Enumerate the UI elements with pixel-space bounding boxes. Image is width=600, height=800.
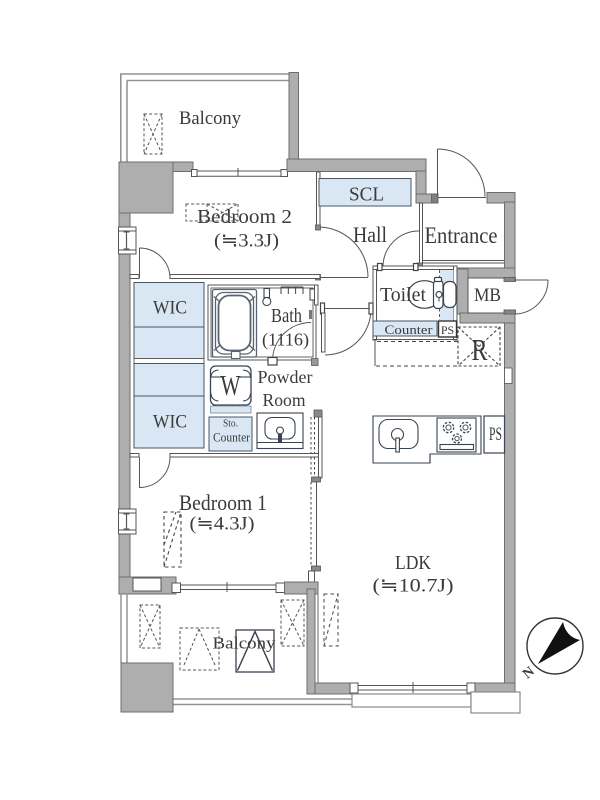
svg-text:(≒3.3J): (≒3.3J) [214, 231, 279, 252]
svg-text:Bedroom 2: Bedroom 2 [197, 206, 292, 228]
svg-text:PS: PS [441, 323, 454, 337]
svg-text:Bath: Bath [271, 305, 302, 327]
svg-text:LDK: LDK [395, 552, 431, 574]
svg-text:(≒10.7J): (≒10.7J) [373, 576, 454, 597]
svg-text:Balcony: Balcony [179, 108, 241, 129]
svg-text:Counter: Counter [213, 431, 251, 445]
svg-text:R: R [472, 332, 488, 367]
svg-text:Toilet: Toilet [380, 284, 426, 306]
svg-text:Hall: Hall [353, 222, 387, 247]
svg-text:Balcony: Balcony [213, 634, 277, 653]
svg-text:SCL: SCL [349, 184, 384, 206]
svg-text:PS: PS [489, 424, 502, 445]
svg-text:Counter: Counter [385, 322, 434, 337]
svg-text:Entrance: Entrance [425, 223, 498, 248]
svg-text:Room: Room [263, 390, 306, 410]
svg-text:Bedroom 1: Bedroom 1 [179, 490, 267, 515]
svg-text:WIC: WIC [153, 412, 187, 433]
svg-text:Sto.: Sto. [223, 418, 238, 430]
svg-text:Powder: Powder [258, 367, 313, 387]
svg-text:MB: MB [474, 286, 501, 306]
svg-text:W: W [221, 370, 241, 402]
svg-text:(≒4.3J): (≒4.3J) [190, 514, 255, 535]
svg-text:WIC: WIC [153, 298, 187, 319]
